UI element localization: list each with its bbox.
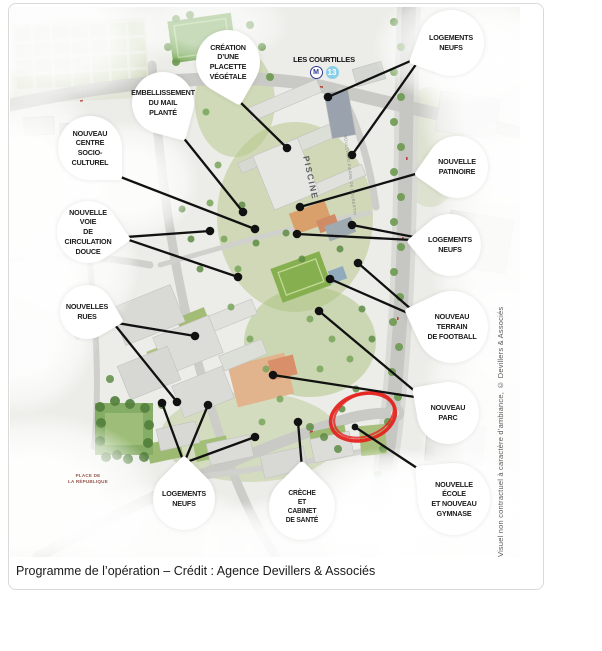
callout-label: LOGEMENTS NEUFS (424, 218, 476, 272)
callout-placette: CRÉATION D’UNE PLACETTE VÉGÉTALE (196, 30, 260, 94)
callout-label: NOUVEAU TERRAIN DE FOOTBALL (421, 295, 482, 359)
callout-football: NOUVEAU TERRAIN DE FOOTBALL (416, 291, 488, 363)
page: LES COURTILLES M 13 PISCINE BOULEVARD PI… (0, 0, 602, 651)
callout-label: CRÉATION D’UNE PLACETTE VÉGÉTALE (201, 34, 255, 90)
callout-logements-nord: LOGEMENTS NEUFS (418, 10, 484, 76)
callout-voie-douce: NOUVELLE VOIE DE CIRCULATION DOUCE (57, 201, 119, 263)
square-label: PLACE DE LA RÉPUBLIQUE (56, 473, 120, 486)
metro-logo-icon: M (310, 66, 323, 79)
callout-parc: NOUVEAU PARC (417, 382, 479, 444)
callout-creche: CRÈCHE ET CABINET DE SANTÉ (269, 474, 335, 540)
callout-embellissement: EMBELLISSEMENT DU MAIL PLANTÉ (132, 72, 194, 134)
callout-label: NOUVELLE PATINOIRE (431, 140, 483, 194)
vertical-credit-text: Visuel non contractuel à caractère d’amb… (496, 165, 505, 557)
station-name: LES COURTILLES (288, 55, 360, 64)
figure-card: LES COURTILLES M 13 PISCINE BOULEVARD PI… (8, 3, 544, 590)
callout-label: NOUVEAU PARC (422, 386, 474, 440)
callout-nouvelles-rues: NOUVELLES RUES (60, 285, 114, 339)
callout-socio-culturel: NOUVEAU CENTRE SOCIO-CULTUREL (58, 116, 122, 180)
callout-label: CRÈCHE ET CABINET DE SANTÉ (274, 478, 330, 536)
callout-logements-sud: LOGEMENTS NEUFS (153, 468, 215, 530)
callout-label: NOUVELLES RUES (65, 289, 109, 335)
callout-patinoire: NOUVELLE PATINOIRE (426, 136, 488, 198)
masterplan-map: LES COURTILLES M 13 PISCINE BOULEVARD PI… (10, 7, 520, 557)
callout-label: NOUVELLE VOIE DE CIRCULATION DOUCE (62, 205, 114, 259)
metro-station: LES COURTILLES M 13 (288, 55, 360, 79)
metro-line-13-badge: 13 (326, 66, 339, 79)
callout-label: EMBELLISSEMENT DU MAIL PLANTÉ (137, 76, 189, 130)
callout-logements-est: LOGEMENTS NEUFS (419, 214, 481, 276)
callout-label: NOUVELLE ÉCOLE ET NOUVEAU GYMNASE (423, 467, 484, 531)
station-badges: M 13 (288, 66, 360, 79)
callout-ecole-gymnase: NOUVELLE ÉCOLE ET NOUVEAU GYMNASE (418, 463, 490, 535)
callout-label: LOGEMENTS NEUFS (423, 14, 479, 72)
callout-label: LOGEMENTS NEUFS (158, 472, 210, 526)
figure-caption: Programme de l’opération – Crédit : Agen… (16, 564, 537, 578)
callout-label: NOUVEAU CENTRE SOCIO-CULTUREL (63, 120, 117, 176)
